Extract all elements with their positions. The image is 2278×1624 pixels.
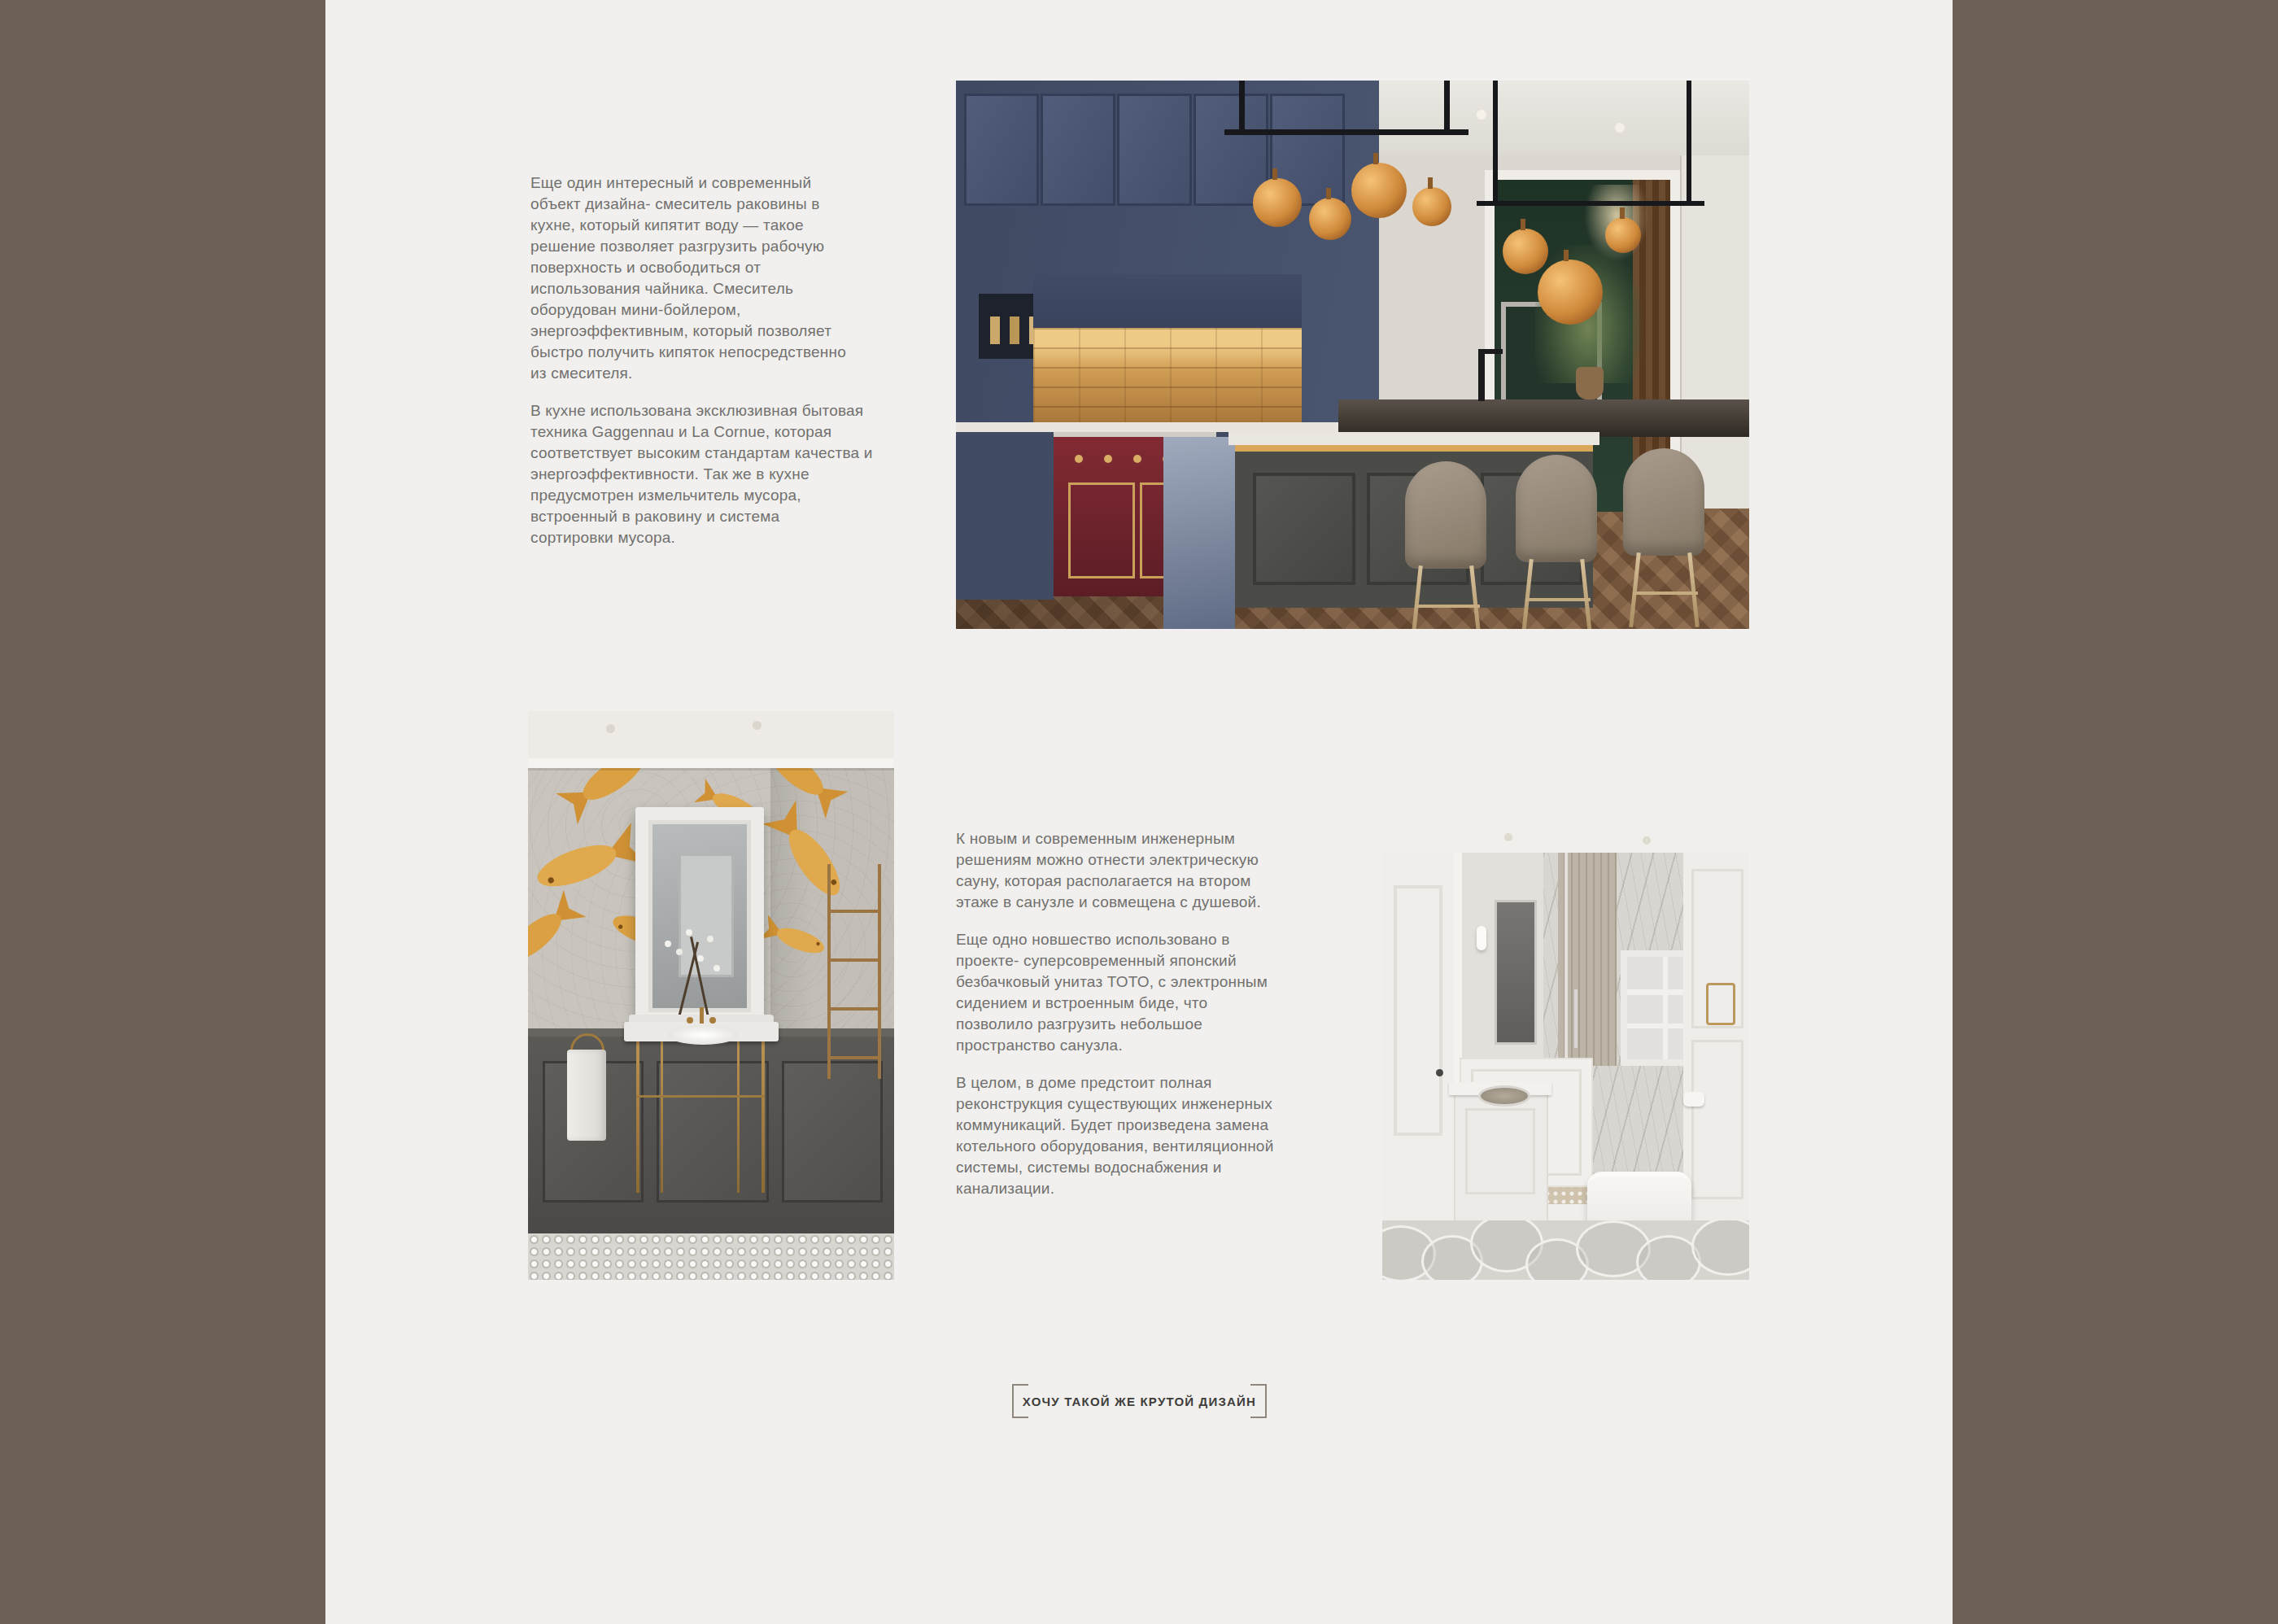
white-bathroom-photo [1382,823,1749,1280]
mosaic-floor [528,1233,894,1280]
copper-pot [1412,187,1451,226]
bar-stool [1623,448,1713,623]
copper-pot [1503,229,1548,274]
copper-pot [1538,260,1603,325]
washstand-leg [661,1041,663,1193]
bathroom2-spotlights [1504,833,1512,841]
copper-pot [1605,217,1641,253]
engineering-paragraph-1: К новым и современным инженерным решения… [956,828,1273,913]
right-margin-panel [1953,0,2278,1624]
kitchen-oven-door [1068,482,1135,578]
pot-rack-post [1493,81,1498,201]
page: { "page": { "width_px": 2800, "height_px… [0,0,2278,1624]
koi-fish [530,823,647,901]
kitchen-marble-counter [956,422,1379,432]
koi-bathroom-photo [528,711,894,1280]
pot-rack-post [1687,81,1691,201]
brass-faucet [700,1007,704,1024]
engineering-paragraph-3: В целом, в доме предстоит полная реконст… [956,1072,1273,1199]
engineering-paragraph-2: Еще одно новшество использовано в проект… [956,929,1273,1056]
wash-basin [668,1025,738,1045]
kitchen-photo [956,81,1749,629]
copper-pot [1253,178,1302,227]
kitchen-island-side [1163,437,1235,629]
kitchen-wood-bowl [1576,367,1604,399]
faucet-cross-handles [687,1017,693,1024]
kitchen-text-block: Еще один интересный и современный объект… [530,172,873,565]
koi-fish [759,915,829,962]
wainscot-panel [782,1061,883,1203]
white-vanity [1454,1092,1548,1227]
white-towel [567,1050,606,1141]
pot-rack-post [1444,81,1450,129]
kitchen-base-cabinet [956,432,1054,600]
pot-rack-rail [1224,129,1468,135]
door-knob [1436,1069,1443,1076]
glass-door-handle [1574,989,1578,1048]
bathroom-ceiling-molding [528,711,894,768]
round-metal-sink [1478,1085,1530,1107]
kitchen-paragraph-2: В кухне использована эксклюзивная бытова… [530,400,873,548]
wall-sconce [1477,926,1486,950]
washstand-leg [636,1041,639,1193]
koi-fish [528,890,587,972]
kitchen-island-marble-top [1228,432,1599,445]
pot-rack-rail [1477,201,1704,206]
toilet-paper-holder [1683,1092,1704,1107]
bar-stool [1405,461,1495,629]
washstand-leg [737,1041,740,1193]
wainscot-panel [657,1061,769,1203]
brass-towel-ladder [827,864,881,1079]
cta-button-label: ХОЧУ ТАКОЙ ЖЕ КРУТОЙ ДИЗАЙН [1023,1395,1256,1408]
copper-pot [1309,198,1351,240]
washstand-crossbar [636,1095,765,1098]
kitchen-upper-door [1041,94,1115,206]
mirror-reflection-door [679,853,734,977]
kitchen-range-hood [1033,274,1302,331]
white-framed-mirror [635,807,764,1025]
engineering-text-block: К новым и современным инженерным решения… [956,828,1273,1216]
washstand-leg [762,1041,765,1193]
branch-blossoms [665,941,671,947]
kitchen-upper-door [1117,94,1192,206]
kitchen-island-panel [1253,473,1355,585]
pot-rack-post [1239,81,1245,129]
kitchen-range-knobs [1075,455,1083,463]
brass-flush-plate [1706,983,1735,1025]
kitchen-paragraph-1: Еще один интересный и современный объект… [530,172,873,384]
circle-mosaic-floor [1382,1220,1749,1280]
door-panel [1394,885,1442,1136]
cta-button[interactable]: ХОЧУ ТАКОЙ ЖЕ КРУТОЙ ДИЗАЙН [1012,1384,1267,1418]
copper-pot [1351,163,1407,218]
vanity-door-panel [1465,1108,1535,1194]
left-margin-panel [0,0,325,1624]
wall-panel [1691,1040,1743,1199]
bathroom-spotlights [606,724,615,733]
kitchen-amber-backsplash [1033,328,1302,424]
bathroom2-right-wall [1683,853,1749,1220]
kitchen-black-faucet [1478,349,1485,401]
kitchen-upper-door [964,94,1039,206]
bar-stool [1516,455,1605,629]
kitchen-jars [990,317,1000,344]
bathroom2-door [1382,853,1462,1253]
dark-framed-mirror [1495,900,1537,1045]
